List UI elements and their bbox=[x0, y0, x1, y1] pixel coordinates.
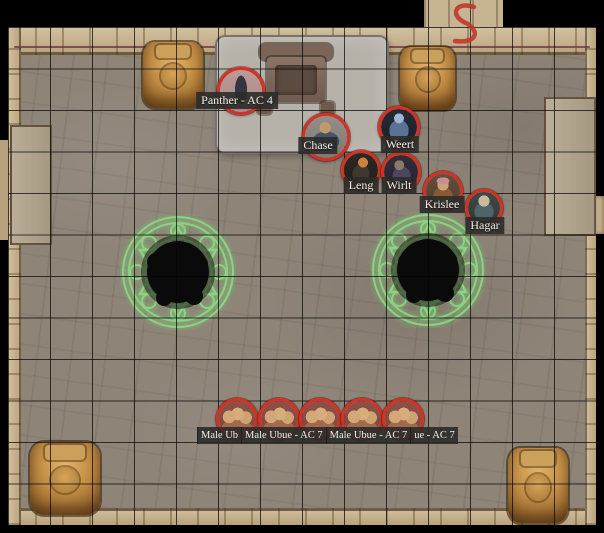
magic-circle-west bbox=[120, 214, 236, 330]
ubue-label-1: Male Ub bbox=[197, 427, 241, 444]
ubue-label-4: ue - AC 7 bbox=[410, 427, 458, 444]
map-canvas[interactable] bbox=[8, 27, 596, 525]
west-door-alcove bbox=[10, 125, 52, 245]
drawn-s-marking bbox=[443, 0, 489, 59]
weert-label: Weert bbox=[381, 136, 419, 153]
statue-southwest bbox=[30, 442, 100, 515]
wall-left bbox=[8, 27, 21, 525]
panther-label: Panther - AC 4 bbox=[196, 92, 278, 109]
statue-northwest bbox=[143, 42, 203, 108]
altar-recess bbox=[275, 65, 317, 95]
hagar-label: Hagar bbox=[465, 217, 504, 234]
leng-label: Leng bbox=[344, 177, 379, 194]
ubue-labels-row: Male Ub Male Ubue - AC 7 Male Ubue - AC … bbox=[197, 427, 458, 444]
ubue-label-3: Male Ubue - AC 7 bbox=[326, 427, 411, 444]
vtt-stage: Panther - AC 4 Chase Weert Leng Wirlt Kr… bbox=[0, 0, 604, 533]
krislee-label: Krislee bbox=[420, 196, 465, 213]
wirlt-label: Wirlt bbox=[382, 177, 417, 194]
chase-label: Chase bbox=[298, 137, 337, 154]
statue-southeast bbox=[508, 448, 568, 523]
ubue-label-2: Male Ubue - AC 7 bbox=[241, 427, 326, 444]
east-door-alcove bbox=[544, 97, 596, 236]
